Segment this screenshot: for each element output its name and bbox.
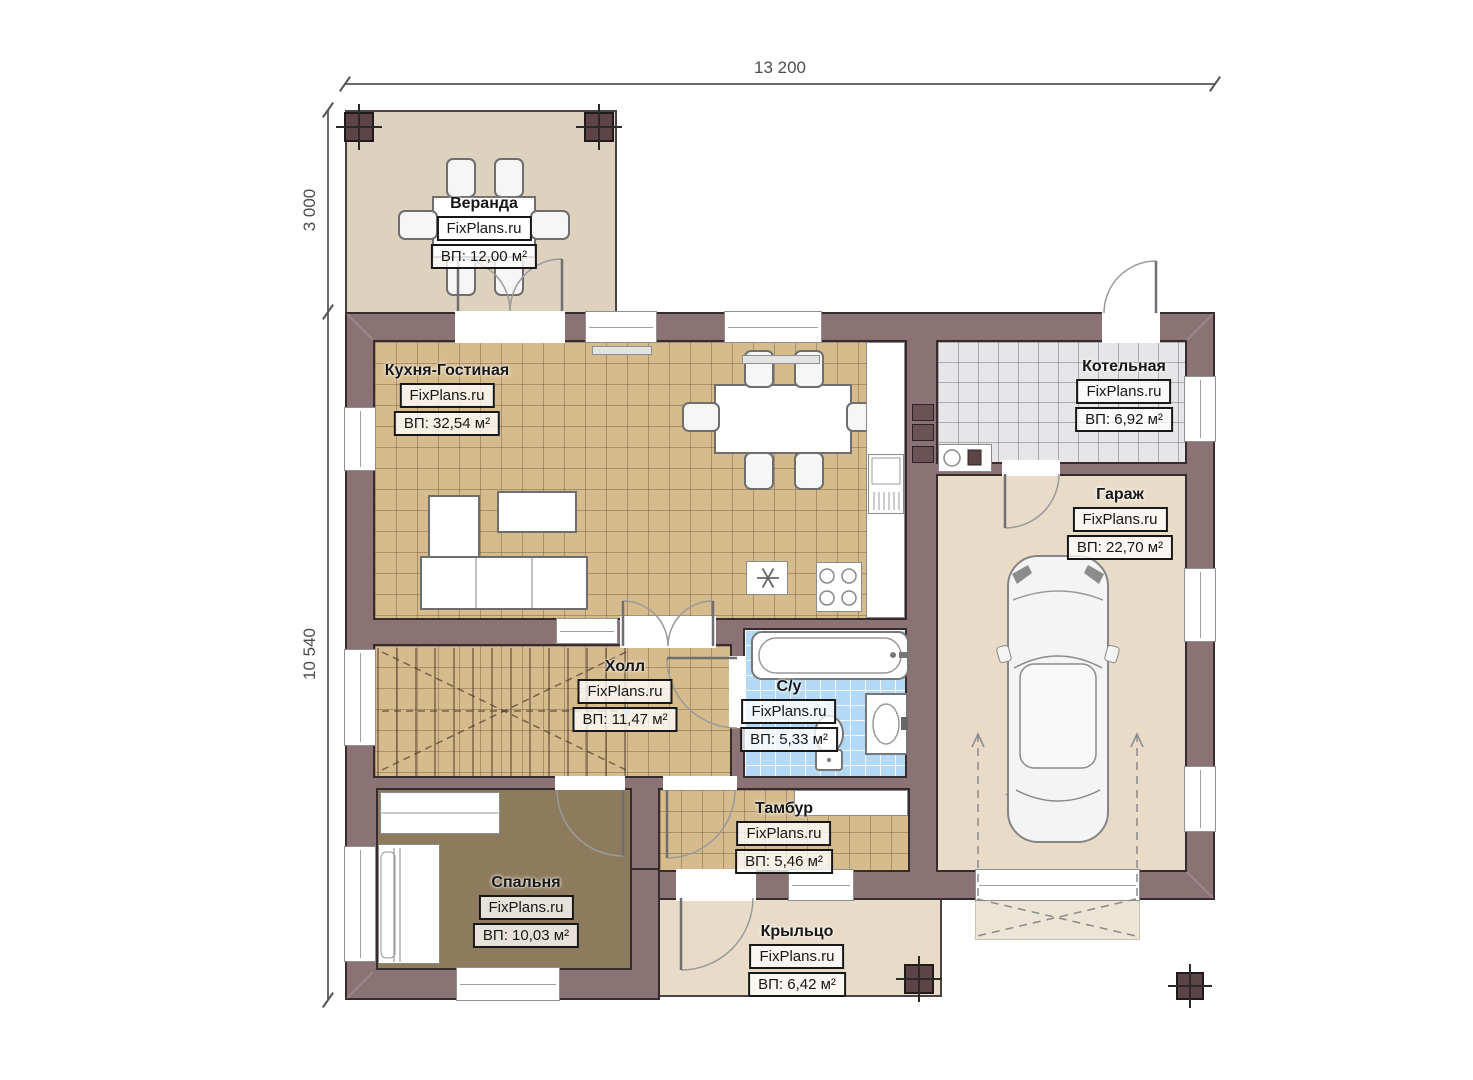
room-label-kitchen-living: Кухня-Гостиная FixPlans.ru ВП: 32,54 м² xyxy=(385,362,509,436)
watermark: FixPlans.ru xyxy=(436,216,531,241)
room-label-bedroom: Спальня FixPlans.ru ВП: 10,03 м² xyxy=(473,874,579,948)
room-area: ВП: 11,47 м² xyxy=(572,707,677,732)
room-area: ВП: 22,70 м² xyxy=(1067,535,1173,560)
room-label-garage: Гараж FixPlans.ru ВП: 22,70 м² xyxy=(1067,486,1173,560)
room-label-porch: Крыльцо FixPlans.ru ВП: 6,42 м² xyxy=(748,923,846,997)
room-area: ВП: 32,54 м² xyxy=(394,411,500,436)
room-name: Веранда xyxy=(450,195,518,213)
dimension-label-width: 13 200 xyxy=(700,58,860,78)
room-name: Холл xyxy=(605,658,645,676)
room-name: Гараж xyxy=(1096,486,1144,504)
watermark: FixPlans.ru xyxy=(577,679,672,704)
room-name: Котельная xyxy=(1082,358,1166,376)
room-name: Тамбур xyxy=(755,800,813,818)
watermark: FixPlans.ru xyxy=(749,944,844,969)
plan-linework-layer xyxy=(0,0,1473,1080)
dimension-label-house-depth: 10 540 xyxy=(300,592,320,716)
room-area: ВП: 12,00 м² xyxy=(431,244,537,269)
floor-plan-canvas: 13 200 3 000 10 540 xyxy=(0,0,1473,1080)
room-area: ВП: 5,33 м² xyxy=(740,727,838,752)
column-post xyxy=(584,112,614,142)
watermark: FixPlans.ru xyxy=(741,699,836,724)
room-area: ВП: 5,46 м² xyxy=(735,849,833,874)
watermark: FixPlans.ru xyxy=(1072,507,1167,532)
room-label-wc: С/у FixPlans.ru ВП: 5,33 м² xyxy=(740,678,838,752)
dimension-label-veranda-depth: 3 000 xyxy=(300,148,320,272)
room-label-hall: Холл FixPlans.ru ВП: 11,47 м² xyxy=(572,658,677,732)
room-name: Кухня-Гостиная xyxy=(385,362,509,380)
room-name: Спальня xyxy=(491,874,560,892)
dimension-line-left xyxy=(327,110,329,1000)
room-area: ВП: 6,92 м² xyxy=(1075,407,1173,432)
column-post xyxy=(344,112,374,142)
room-name: С/у xyxy=(777,678,802,696)
watermark: FixPlans.ru xyxy=(399,383,494,408)
room-label-boiler: Котельная FixPlans.ru ВП: 6,92 м² xyxy=(1075,358,1173,432)
column-post xyxy=(1176,972,1204,1000)
column-post xyxy=(904,964,934,994)
watermark: FixPlans.ru xyxy=(1076,379,1171,404)
sink-icon xyxy=(866,694,908,754)
room-area: ВП: 6,42 м² xyxy=(748,972,846,997)
dimension-line-top xyxy=(345,83,1215,85)
room-name: Крыльцо xyxy=(761,923,834,941)
bathtub-icon xyxy=(752,632,908,679)
watermark: FixPlans.ru xyxy=(478,895,573,920)
watermark: FixPlans.ru xyxy=(736,821,831,846)
car-icon xyxy=(996,556,1120,842)
room-label-veranda: Веранда FixPlans.ru ВП: 12,00 м² xyxy=(431,195,537,269)
room-label-tambour: Тамбур FixPlans.ru ВП: 5,46 м² xyxy=(735,800,833,874)
room-area: ВП: 10,03 м² xyxy=(473,923,579,948)
